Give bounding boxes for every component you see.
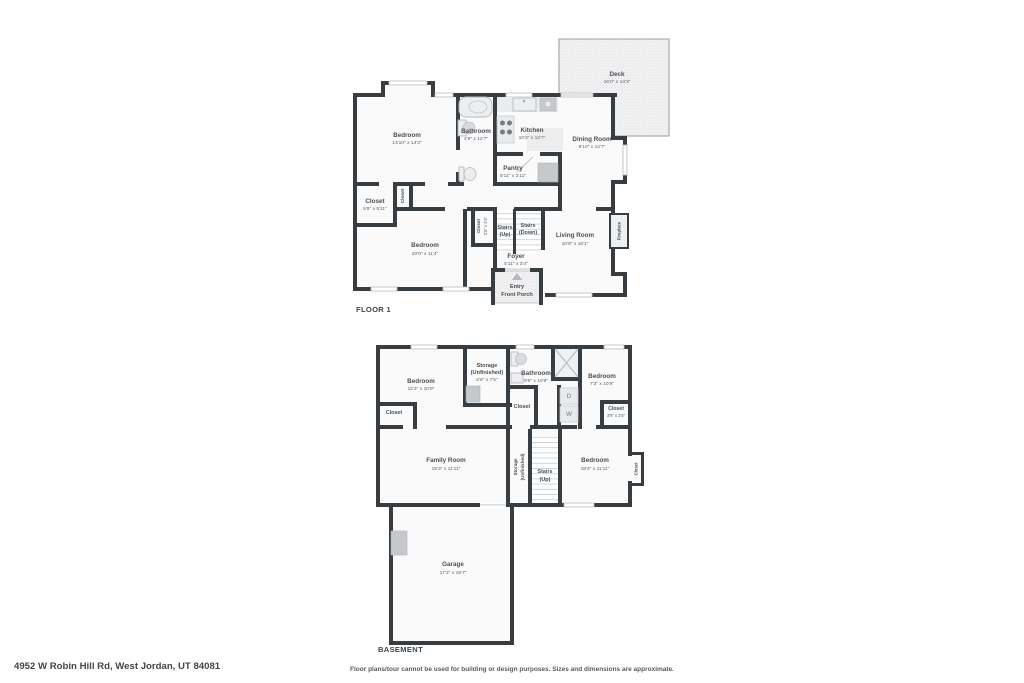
fridge-icon (538, 163, 558, 182)
f1-pantry-dims: 5'11" x 2'11" (500, 173, 526, 179)
b-bedroom-tl-name: Bedroom (407, 378, 435, 385)
foyer-dims: 5'11" x 3'4" (504, 261, 528, 267)
f1-bedroom2-name: Bedroom (411, 242, 439, 249)
washer-letter: W (566, 411, 573, 418)
b-stairs-line1: Stairs (538, 469, 553, 475)
basement-title: BASEMENT (378, 645, 423, 654)
dryer-letter: D (567, 393, 572, 400)
b-closet-right-dims: 3'9" x 2'5" (607, 413, 626, 418)
living-dims: 10'9" x 16'1" (562, 241, 589, 247)
b-bathroom-name: Bathroom (521, 370, 551, 377)
f1-closet2-name: Closet (400, 188, 406, 203)
svg-text:Closet: Closet (476, 219, 481, 234)
f1-closet1-dims: 5'9" x 5'11" (363, 206, 387, 212)
deck-dims: 16'0" x 14'3" (604, 79, 631, 85)
f1-kitchen-dims: 10'2" x 12'7" (519, 135, 546, 141)
stairs-up-label: Stairs (498, 225, 513, 231)
disclaimer-text: Floor plans/tour cannot be used for buil… (0, 666, 1024, 673)
b-storage-strip-line2: (Unfinished) (520, 453, 525, 480)
b-closet-right-name: Closet (608, 406, 624, 412)
b-storage-line2: (Unfinished) (471, 370, 504, 376)
shower-icon (555, 349, 578, 377)
living-name: Living Room (556, 232, 595, 239)
water-heater-icon (466, 386, 480, 402)
b-storage-line1: Storage (477, 363, 498, 369)
b-stairs-line2: (Up) (540, 477, 551, 483)
b-bedroom-br-name: Bedroom (581, 457, 609, 464)
toilet-bowl-icon (464, 168, 476, 181)
f1-closet1-name: Closet (365, 198, 385, 205)
b-family-dims: 19'3" x 11'11" (432, 466, 461, 472)
basement-sink-bowl (516, 354, 527, 365)
f1-bathroom-name: Bathroom (461, 128, 491, 135)
floor1-title: FLOOR 1 (356, 305, 391, 314)
stairs-down-label: Stairs (521, 223, 536, 229)
floor-plan-page: Bedroom 14'10" x 14'3" Bathroom 4'9" x 1… (0, 0, 1024, 683)
floor1-plan: Bedroom 14'10" x 14'3" Bathroom 4'9" x 1… (353, 39, 669, 314)
f1-dining-dims: 8'10" x 12'7" (579, 144, 606, 150)
garage-dims: 17'2" x 19'7" (440, 570, 467, 576)
f1-bathroom-dims: 4'9" x 12'7" (464, 136, 488, 142)
toilet-tank-icon (459, 167, 464, 181)
fireplace-label: Fireplace (617, 221, 622, 240)
b-storage-strip-line1: Storage (513, 458, 518, 476)
f1-kitchen-name: Kitchen (520, 127, 543, 134)
b-family-name: Family Room (426, 457, 466, 464)
stairs-down-label2: (Down) (519, 230, 537, 236)
svg-text:2'5" x 4'5": 2'5" x 4'5" (483, 216, 488, 235)
foyer-name: Foyer (507, 253, 525, 260)
deck-name: Deck (609, 71, 625, 78)
b-closet-mid-label: Closet (514, 404, 531, 410)
b-bedroom-tl-dims: 12'4" x 10'9" (408, 386, 435, 392)
basement-plan: Bedroom 12'4" x 10'9" Storage (Unfinishe… (376, 345, 644, 654)
f1-bedroom1-name: Bedroom (393, 132, 421, 139)
f1-pantry-name: Pantry (503, 165, 523, 172)
stove-icon (497, 116, 514, 143)
b-bedroom-tr-name: Bedroom (588, 373, 616, 380)
b-closet-bump-label: Closet (634, 462, 639, 475)
f1-dining-name: Dining Room (572, 136, 612, 143)
b-bedroom-tr-dims: 7'2" x 10'9" (590, 381, 614, 387)
floor-plan-drawing: Bedroom 14'10" x 14'3" Bathroom 4'9" x 1… (0, 0, 1024, 683)
f1-bedroom2-dims: 20'0" x 11'4" (412, 251, 439, 257)
b-closet-left-label: Closet (386, 410, 403, 416)
b-storage-dims: 6'6" x 7'5" (476, 377, 498, 383)
garage-name: Garage (442, 561, 464, 568)
b-bathroom-dims: 9'5" x 10'9" (524, 378, 548, 384)
b-bedroom-br-dims: 18'4" x 11'11" (581, 466, 610, 472)
stairs-up-label2: (Up) (500, 232, 511, 238)
entry-label: Entry (510, 284, 525, 290)
f1-bedroom1-dims: 14'10" x 14'3" (392, 140, 422, 146)
garage-utility-icon (391, 531, 407, 555)
front-porch-label: Front Porch (501, 292, 533, 298)
